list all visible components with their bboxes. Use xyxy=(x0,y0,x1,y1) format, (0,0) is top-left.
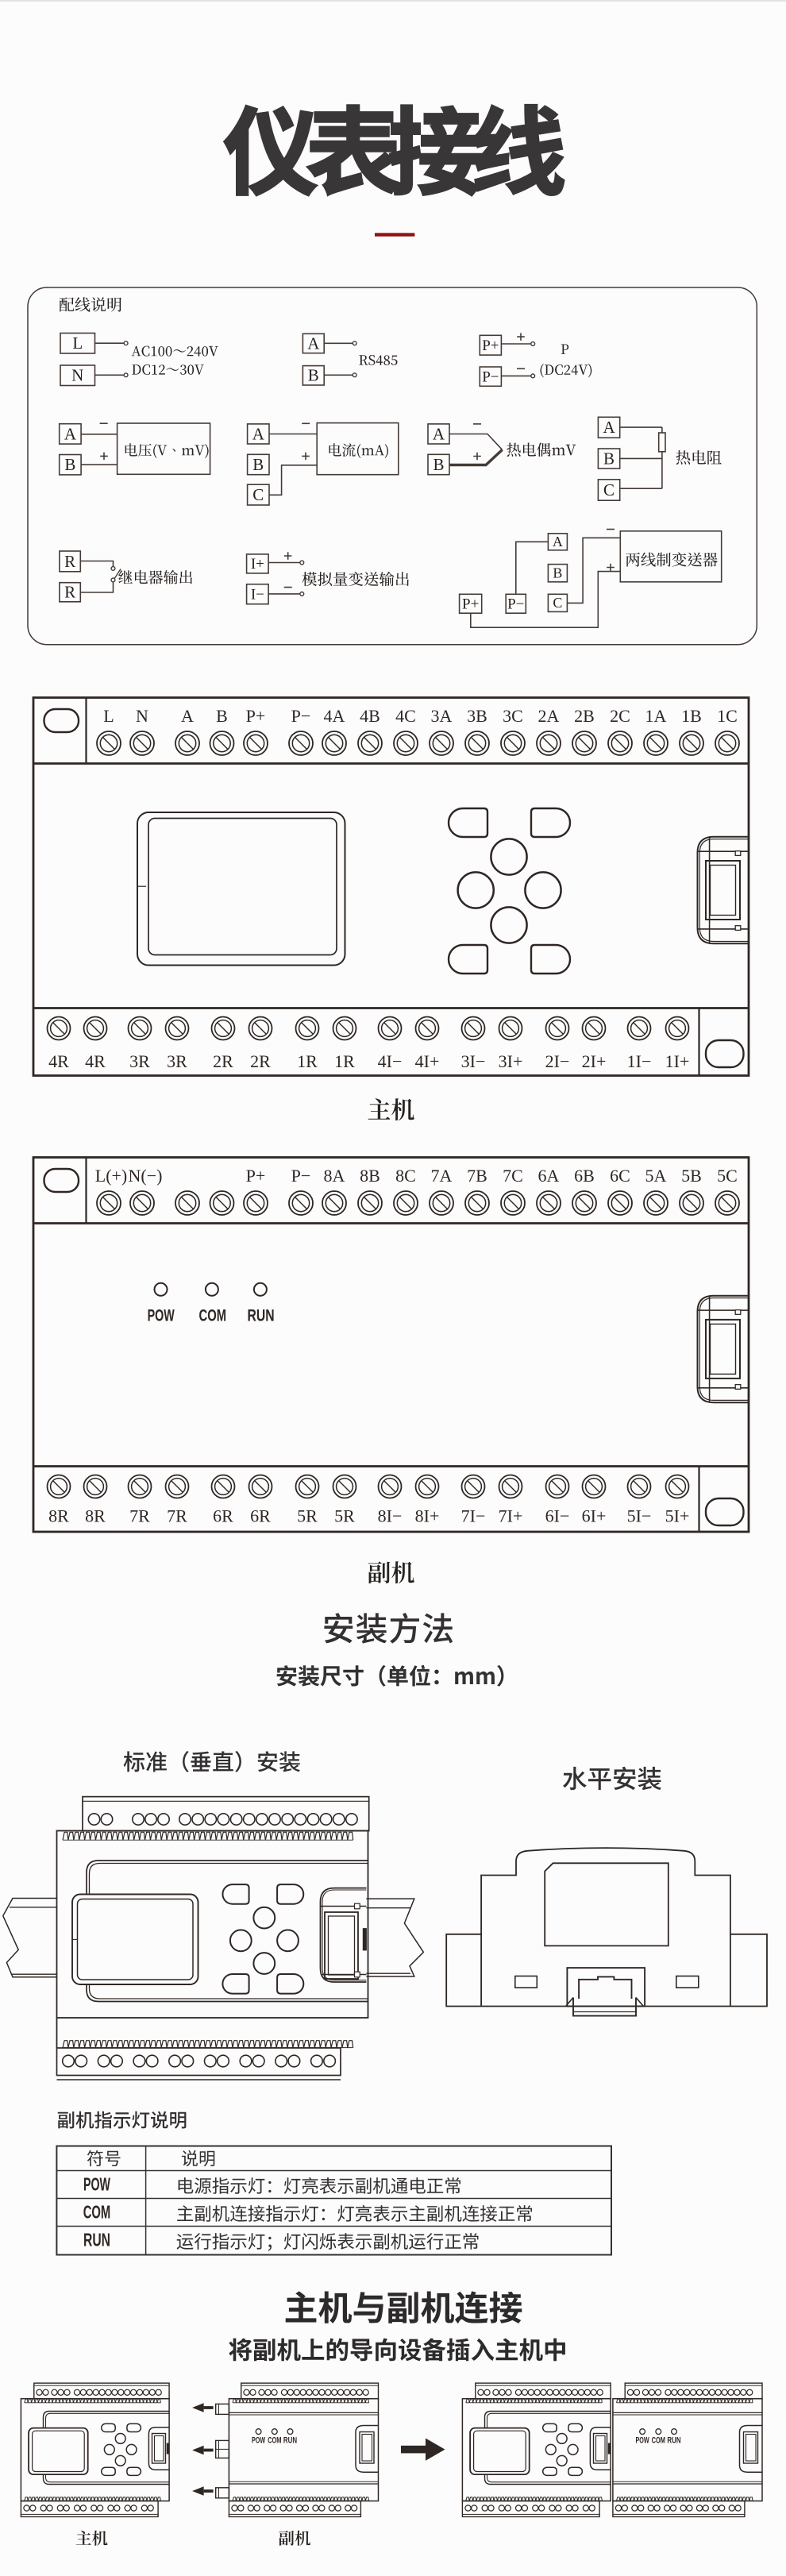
svg-text:P−: P− xyxy=(291,706,311,726)
svg-text:2C: 2C xyxy=(610,706,630,726)
svg-text:L: L xyxy=(72,334,83,353)
svg-text:RUN: RUN xyxy=(667,2435,680,2445)
svg-text:R: R xyxy=(64,583,75,602)
svg-text:3I+: 3I+ xyxy=(499,1051,523,1071)
svg-text:A: A xyxy=(603,418,615,437)
svg-text:8C: 8C xyxy=(395,1166,416,1186)
svg-text:C: C xyxy=(553,595,562,611)
svg-text:P+: P+ xyxy=(246,706,266,726)
svg-text:B: B xyxy=(64,455,75,474)
svg-text:A: A xyxy=(553,534,563,550)
svg-text:6I+: 6I+ xyxy=(582,1506,607,1526)
svg-text:7R: 7R xyxy=(129,1506,150,1526)
svg-text:A: A xyxy=(252,424,265,443)
svg-text:RUN: RUN xyxy=(83,2230,110,2250)
svg-text:B: B xyxy=(433,455,444,474)
svg-text:2R: 2R xyxy=(250,1051,271,1071)
svg-text:N: N xyxy=(136,706,148,726)
svg-text:6B: 6B xyxy=(574,1166,595,1186)
svg-text:3A: 3A xyxy=(431,706,453,726)
svg-text:L(+): L(+) xyxy=(95,1166,128,1186)
svg-text:8A: 8A xyxy=(324,1166,345,1186)
svg-text:P−: P− xyxy=(507,596,524,612)
svg-text:3R: 3R xyxy=(167,1051,187,1071)
svg-text:5R: 5R xyxy=(297,1506,318,1526)
svg-text:5I−: 5I− xyxy=(627,1506,652,1526)
svg-text:2B: 2B xyxy=(574,706,595,726)
svg-text:B: B xyxy=(308,366,319,385)
svg-text:7I+: 7I+ xyxy=(499,1506,523,1526)
svg-text:7A: 7A xyxy=(431,1166,453,1186)
svg-text:A: A xyxy=(181,706,194,726)
svg-text:4I+: 4I+ xyxy=(415,1051,440,1071)
svg-text:P+: P+ xyxy=(246,1166,266,1186)
svg-text:1I+: 1I+ xyxy=(665,1051,690,1071)
svg-text:7R: 7R xyxy=(167,1506,187,1526)
svg-text:2A: 2A xyxy=(538,706,560,726)
svg-text:1I−: 1I− xyxy=(627,1051,652,1071)
svg-text:POW: POW xyxy=(148,1306,175,1325)
svg-text:B: B xyxy=(216,706,228,726)
svg-text:B: B xyxy=(553,565,562,581)
svg-text:POW: POW xyxy=(636,2435,650,2445)
svg-text:P−: P− xyxy=(291,1166,311,1186)
svg-text:4B: 4B xyxy=(360,706,380,726)
svg-text:COM: COM xyxy=(268,2435,281,2445)
svg-text:4R: 4R xyxy=(48,1051,69,1071)
svg-text:1R: 1R xyxy=(334,1051,355,1071)
svg-text:COM: COM xyxy=(652,2435,665,2445)
svg-text:A: A xyxy=(433,424,445,443)
svg-text:4A: 4A xyxy=(324,706,345,726)
svg-text:5B: 5B xyxy=(681,1166,702,1186)
svg-text:C: C xyxy=(603,480,615,499)
svg-text:2I−: 2I− xyxy=(545,1051,570,1071)
svg-text:5A: 5A xyxy=(645,1166,667,1186)
svg-text:6R: 6R xyxy=(250,1506,271,1526)
svg-text:I+: I+ xyxy=(251,556,264,573)
svg-text:5C: 5C xyxy=(717,1166,738,1186)
svg-text:R: R xyxy=(64,552,75,571)
svg-text:8B: 8B xyxy=(360,1166,380,1186)
svg-text:I−: I− xyxy=(251,586,264,603)
svg-text:N: N xyxy=(71,366,83,385)
svg-text:P+: P+ xyxy=(482,337,499,354)
svg-text:RUN: RUN xyxy=(248,1306,275,1325)
svg-text:3B: 3B xyxy=(467,706,487,726)
svg-text:POW: POW xyxy=(252,2435,266,2445)
svg-text:L: L xyxy=(103,706,114,726)
svg-text:A: A xyxy=(307,334,320,353)
svg-text:A: A xyxy=(64,424,77,443)
svg-text:8R: 8R xyxy=(85,1506,106,1526)
svg-text:7I−: 7I− xyxy=(461,1506,486,1526)
svg-text:7B: 7B xyxy=(467,1166,487,1186)
svg-text:4R: 4R xyxy=(85,1051,106,1071)
svg-text:8R: 8R xyxy=(48,1506,69,1526)
svg-text:5I+: 5I+ xyxy=(665,1506,690,1526)
svg-text:8I+: 8I+ xyxy=(415,1506,440,1526)
svg-text:2R: 2R xyxy=(213,1051,233,1071)
svg-text:2I+: 2I+ xyxy=(582,1051,607,1071)
svg-text:COM: COM xyxy=(83,2202,111,2223)
svg-text:B: B xyxy=(252,455,264,474)
svg-text:6A: 6A xyxy=(538,1166,560,1186)
svg-text:N(−): N(−) xyxy=(129,1166,163,1186)
svg-text:1R: 1R xyxy=(297,1051,318,1071)
svg-text:P−: P− xyxy=(482,368,499,385)
svg-text:3R: 3R xyxy=(129,1051,150,1071)
svg-text:4I−: 4I− xyxy=(378,1051,403,1071)
svg-text:6R: 6R xyxy=(213,1506,233,1526)
svg-text:3C: 3C xyxy=(503,706,523,726)
svg-text:P+: P+ xyxy=(462,596,479,612)
svg-text:POW: POW xyxy=(83,2174,110,2195)
svg-text:1A: 1A xyxy=(645,706,667,726)
svg-text:C: C xyxy=(252,485,264,504)
svg-text:RUN: RUN xyxy=(283,2435,297,2445)
svg-text:5R: 5R xyxy=(334,1506,355,1526)
svg-text:B: B xyxy=(603,449,615,468)
svg-text:7C: 7C xyxy=(503,1166,523,1186)
svg-text:1B: 1B xyxy=(681,706,702,726)
svg-text:3I−: 3I− xyxy=(461,1051,486,1071)
svg-text:8I−: 8I− xyxy=(378,1506,403,1526)
svg-text:4C: 4C xyxy=(395,706,416,726)
svg-text:1C: 1C xyxy=(717,706,738,726)
svg-text:COM: COM xyxy=(199,1306,227,1325)
svg-text:6C: 6C xyxy=(610,1166,630,1186)
svg-text:6I−: 6I− xyxy=(545,1506,570,1526)
